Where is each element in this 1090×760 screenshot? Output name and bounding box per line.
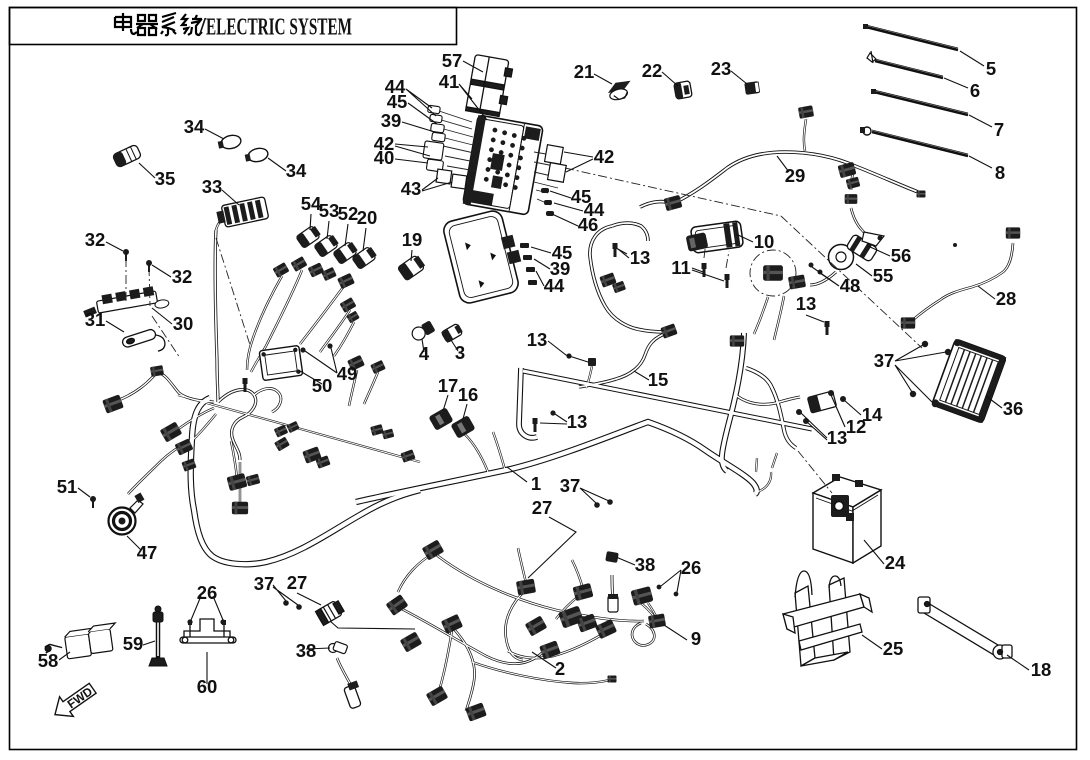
svg-text:7: 7 [994, 119, 1004, 140]
svg-text:21: 21 [574, 61, 595, 82]
svg-text:13: 13 [567, 411, 588, 432]
svg-text:53: 53 [319, 200, 340, 221]
svg-text:26: 26 [197, 582, 218, 603]
svg-text:13: 13 [796, 293, 817, 314]
svg-text:29: 29 [785, 165, 806, 186]
svg-text:16: 16 [458, 384, 479, 405]
svg-text:44: 44 [544, 275, 565, 296]
svg-text:6: 6 [970, 80, 980, 101]
svg-text:40: 40 [374, 147, 395, 168]
svg-text:27: 27 [532, 497, 553, 518]
svg-text:2: 2 [555, 658, 565, 679]
svg-text:47: 47 [137, 542, 158, 563]
svg-text:55: 55 [873, 265, 894, 286]
svg-text:45: 45 [387, 91, 408, 112]
svg-text:/: / [198, 14, 207, 41]
svg-text:51: 51 [57, 476, 78, 497]
svg-text:23: 23 [711, 58, 732, 79]
svg-text:19: 19 [402, 229, 423, 250]
svg-text:37: 37 [874, 350, 895, 371]
svg-text:36: 36 [1003, 398, 1024, 419]
svg-text:42: 42 [594, 146, 615, 167]
svg-text:11: 11 [671, 257, 691, 278]
svg-text:35: 35 [155, 168, 176, 189]
svg-text:49: 49 [337, 363, 358, 384]
svg-text:30: 30 [173, 313, 194, 334]
svg-text:12: 12 [846, 416, 867, 437]
svg-text:37: 37 [254, 573, 275, 594]
svg-text:57: 57 [442, 50, 463, 71]
svg-text:10: 10 [754, 231, 775, 252]
svg-text:33: 33 [202, 176, 223, 197]
svg-text:28: 28 [996, 288, 1017, 309]
svg-text:56: 56 [891, 245, 912, 266]
svg-text:13: 13 [827, 427, 848, 448]
svg-text:59: 59 [123, 633, 144, 654]
svg-text:60: 60 [197, 676, 218, 697]
svg-text:ELECTRIC SYSTEM: ELECTRIC SYSTEM [206, 15, 352, 41]
svg-text:52: 52 [338, 203, 359, 224]
svg-text:25: 25 [883, 638, 904, 659]
svg-text:22: 22 [642, 60, 663, 81]
svg-text:32: 32 [172, 266, 193, 287]
svg-text:38: 38 [635, 554, 656, 575]
svg-text:50: 50 [312, 375, 333, 396]
svg-text:9: 9 [691, 628, 701, 649]
svg-text:38: 38 [296, 640, 317, 661]
svg-text:31: 31 [85, 309, 106, 330]
svg-text:34: 34 [286, 160, 307, 181]
svg-text:46: 46 [578, 214, 599, 235]
svg-text:39: 39 [381, 110, 402, 131]
svg-text:43: 43 [401, 178, 422, 199]
svg-text:18: 18 [1031, 659, 1052, 680]
svg-text:3: 3 [455, 342, 465, 363]
svg-text:41: 41 [439, 71, 460, 92]
svg-text:1: 1 [531, 473, 541, 494]
svg-text:32: 32 [85, 229, 106, 250]
svg-text:8: 8 [995, 162, 1005, 183]
svg-text:4: 4 [419, 343, 430, 364]
svg-text:26: 26 [681, 557, 702, 578]
svg-text:15: 15 [648, 369, 669, 390]
svg-text:13: 13 [527, 329, 548, 350]
svg-text:27: 27 [287, 572, 308, 593]
svg-text:58: 58 [38, 650, 59, 671]
svg-text:13: 13 [630, 247, 651, 268]
svg-text:24: 24 [885, 552, 906, 573]
svg-text:37: 37 [560, 475, 581, 496]
svg-text:20: 20 [357, 207, 378, 228]
svg-text:17: 17 [438, 375, 459, 396]
svg-text:5: 5 [986, 58, 996, 79]
svg-text:48: 48 [840, 275, 861, 296]
svg-text:34: 34 [184, 116, 205, 137]
